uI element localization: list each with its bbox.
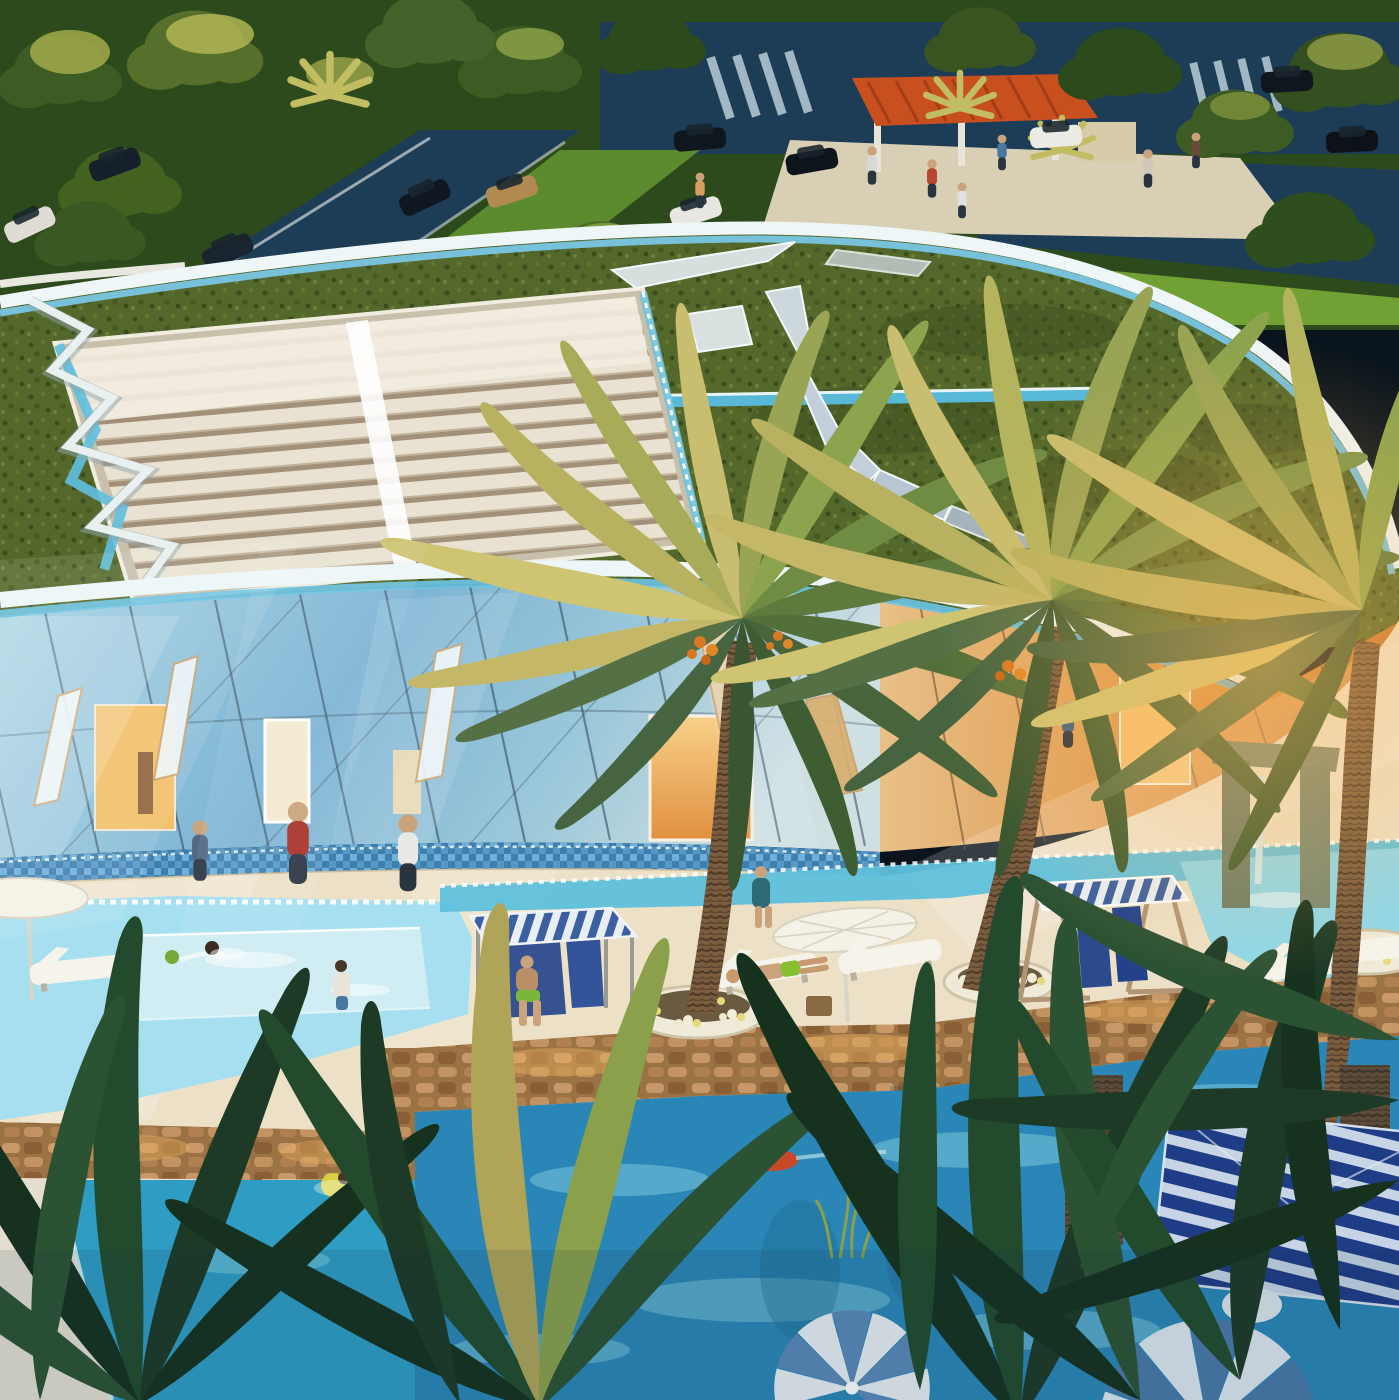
submerged-platform — [120, 928, 430, 1020]
side-table — [806, 996, 832, 1016]
resort-aerial-rendering — [0, 0, 1399, 1400]
cabana-drape — [566, 938, 604, 1008]
bottom-vignette — [0, 1250, 1399, 1400]
